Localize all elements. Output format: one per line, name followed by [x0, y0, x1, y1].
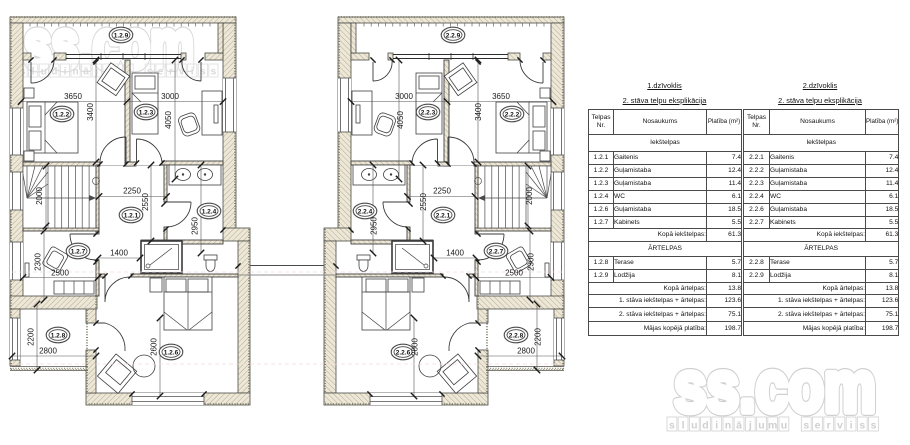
svg-text:3000: 3000: [395, 92, 413, 101]
svg-text:3650: 3650: [64, 92, 82, 101]
svg-text:2800: 2800: [39, 347, 57, 356]
svg-text:2600: 2600: [150, 338, 159, 356]
svg-text:u: u: [781, 420, 787, 432]
svg-text:ss.com: ss.com: [674, 348, 876, 428]
svg-text:3650: 3650: [492, 92, 510, 101]
svg-text:2950: 2950: [191, 217, 200, 235]
svg-text:j: j: [748, 420, 752, 432]
svg-text:2200: 2200: [27, 328, 36, 346]
svg-text:2500: 2500: [505, 269, 523, 278]
svg-text:s: s: [859, 420, 865, 432]
svg-text:e: e: [815, 420, 821, 432]
svg-text:3400: 3400: [474, 103, 483, 121]
svg-text:2500: 2500: [51, 269, 69, 278]
svg-text:2.2.9: 2.2.9: [446, 32, 461, 39]
svg-text:d: d: [702, 420, 708, 432]
svg-text:u: u: [41, 67, 47, 78]
svg-text:i: i: [191, 67, 194, 78]
svg-text:2550: 2550: [419, 193, 428, 211]
svg-text:2000: 2000: [35, 187, 44, 205]
svg-text:2300: 2300: [34, 253, 43, 271]
svg-text:2300: 2300: [527, 253, 536, 271]
svg-text:1.2.9: 1.2.9: [114, 32, 129, 39]
svg-text:2.2.1: 2.2.1: [436, 212, 451, 219]
svg-text:2550: 2550: [141, 193, 150, 211]
svg-text:s: s: [211, 67, 217, 78]
svg-text:2.2.7: 2.2.7: [489, 248, 504, 255]
svg-text:2950: 2950: [370, 217, 379, 235]
svg-text:l: l: [32, 67, 35, 78]
svg-text:1.2.6: 1.2.6: [164, 349, 179, 356]
svg-text:2.2.2: 2.2.2: [505, 111, 520, 118]
svg-text:4050: 4050: [396, 111, 405, 129]
svg-text:2.2.3: 2.2.3: [421, 109, 436, 116]
svg-text:ā: ā: [736, 420, 742, 432]
svg-text:1400: 1400: [110, 249, 128, 258]
svg-text:4050: 4050: [164, 111, 173, 129]
svg-text:r: r: [169, 67, 173, 78]
svg-text:ā: ā: [83, 67, 89, 78]
svg-text:2800: 2800: [517, 347, 535, 356]
svg-text:1.2.2: 1.2.2: [55, 111, 70, 118]
svg-text:2250: 2250: [123, 187, 141, 196]
svg-text:n: n: [73, 67, 79, 78]
svg-text:1.2.1: 1.2.1: [124, 212, 139, 219]
svg-text:r: r: [827, 420, 831, 432]
svg-text:2.2.6: 2.2.6: [396, 349, 411, 356]
svg-text:v: v: [179, 67, 185, 78]
svg-text:1.2.7: 1.2.7: [71, 248, 86, 255]
svg-text:2.2.4: 2.2.4: [358, 208, 373, 215]
svg-text:2200: 2200: [534, 328, 543, 346]
svg-text:m: m: [768, 420, 777, 432]
svg-text:2000: 2000: [525, 187, 534, 205]
svg-text:e: e: [158, 67, 164, 78]
svg-text:1.2.8: 1.2.8: [51, 332, 66, 339]
svg-text:s: s: [871, 420, 877, 432]
svg-text:2600: 2600: [411, 338, 420, 356]
svg-text:1.2.3: 1.2.3: [139, 109, 154, 116]
svg-text:2250: 2250: [433, 187, 451, 196]
svg-text:1400: 1400: [446, 249, 464, 258]
svg-text:i: i: [715, 420, 718, 432]
svg-text:v: v: [837, 420, 843, 432]
svg-text:s: s: [669, 420, 675, 432]
svg-text:j: j: [94, 67, 98, 78]
svg-text:3400: 3400: [86, 103, 95, 121]
svg-text:s: s: [803, 420, 809, 432]
svg-text:i: i: [850, 420, 853, 432]
svg-text:i: i: [64, 67, 67, 78]
svg-text:u: u: [691, 420, 697, 432]
svg-text:1.2.4: 1.2.4: [202, 208, 217, 215]
svg-text:l: l: [682, 420, 685, 432]
svg-text:n: n: [725, 420, 731, 432]
svg-text:3000: 3000: [161, 92, 179, 101]
svg-text:u: u: [758, 420, 764, 432]
svg-text:2.2.8: 2.2.8: [509, 332, 524, 339]
